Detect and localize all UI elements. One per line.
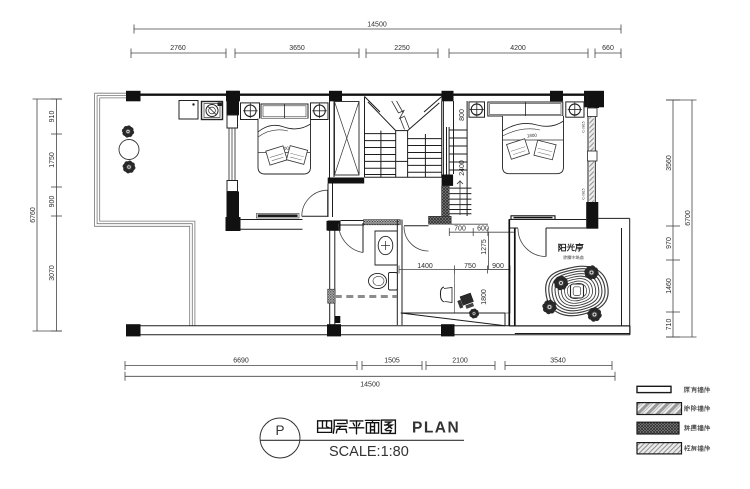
- svg-text:750: 750: [464, 263, 476, 270]
- svg-text:1800: 1800: [481, 289, 488, 305]
- svg-text:1460: 1460: [666, 278, 673, 294]
- svg-text:3540: 3540: [550, 358, 566, 365]
- svg-text:2250: 2250: [394, 45, 410, 52]
- svg-text:P: P: [275, 423, 284, 438]
- svg-text:1800: 1800: [527, 133, 538, 139]
- svg-text:700: 700: [454, 226, 466, 233]
- svg-text:900: 900: [49, 196, 56, 208]
- svg-text:3650: 3650: [289, 45, 305, 52]
- svg-text:6760: 6760: [30, 207, 37, 223]
- svg-text:14500: 14500: [367, 22, 387, 29]
- svg-text:600: 600: [477, 226, 489, 233]
- svg-text:1505: 1505: [384, 358, 400, 365]
- svg-text:800: 800: [459, 109, 466, 121]
- svg-text:6690: 6690: [233, 358, 249, 365]
- svg-text:710: 710: [666, 319, 673, 331]
- svg-text:PLAN: PLAN: [412, 420, 460, 437]
- svg-text:SCALE:1:80: SCALE:1:80: [329, 444, 409, 460]
- svg-text:4200: 4200: [510, 45, 526, 52]
- svg-text:3560: 3560: [666, 155, 673, 171]
- svg-text:C-0815: C-0815: [582, 188, 586, 199]
- svg-text:2100: 2100: [452, 358, 468, 365]
- svg-text:6700: 6700: [685, 210, 692, 226]
- svg-text:900: 900: [492, 263, 504, 270]
- svg-text:14500: 14500: [360, 382, 380, 389]
- svg-text:660: 660: [602, 45, 614, 52]
- svg-text:2400: 2400: [459, 160, 466, 176]
- svg-text:970: 970: [666, 237, 673, 249]
- svg-text:1400: 1400: [417, 263, 433, 270]
- svg-text:1750: 1750: [49, 152, 56, 168]
- svg-text:910: 910: [49, 111, 56, 123]
- svg-text:2760: 2760: [170, 45, 186, 52]
- svg-text:C-0815: C-0815: [582, 121, 586, 132]
- svg-text:3070: 3070: [49, 265, 56, 281]
- svg-text:1275: 1275: [481, 239, 488, 255]
